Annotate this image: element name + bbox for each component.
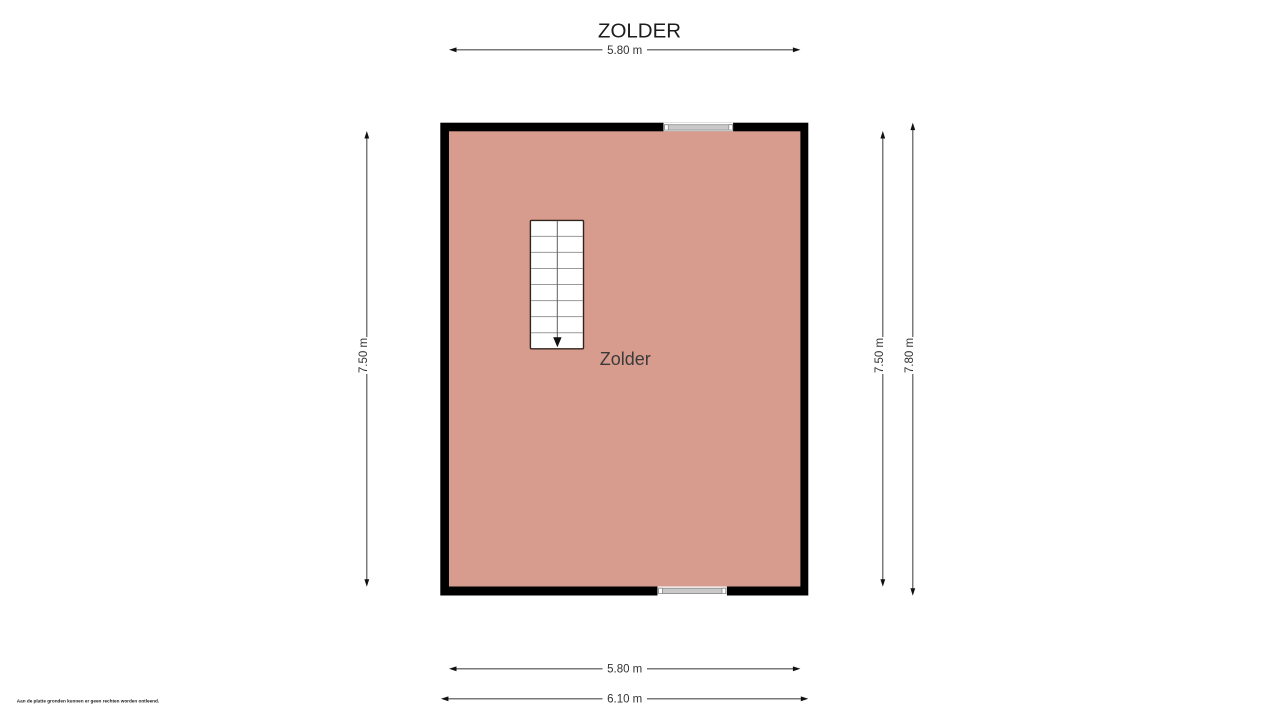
svg-text:Aan de platte gronden kunnen e: Aan de platte gronden kunnen er geen rec… bbox=[17, 699, 159, 704]
svg-text:ZOLDER: ZOLDER bbox=[598, 20, 681, 43]
svg-text:5.80 m: 5.80 m bbox=[607, 664, 642, 676]
svg-text:7.50 m: 7.50 m bbox=[874, 338, 886, 373]
svg-text:6.10 m: 6.10 m bbox=[607, 694, 642, 706]
svg-text:5.80 m: 5.80 m bbox=[607, 45, 642, 57]
svg-text:Zolder: Zolder bbox=[600, 349, 651, 369]
svg-text:7.80 m: 7.80 m bbox=[904, 338, 916, 373]
svg-text:7.50 m: 7.50 m bbox=[358, 338, 370, 373]
